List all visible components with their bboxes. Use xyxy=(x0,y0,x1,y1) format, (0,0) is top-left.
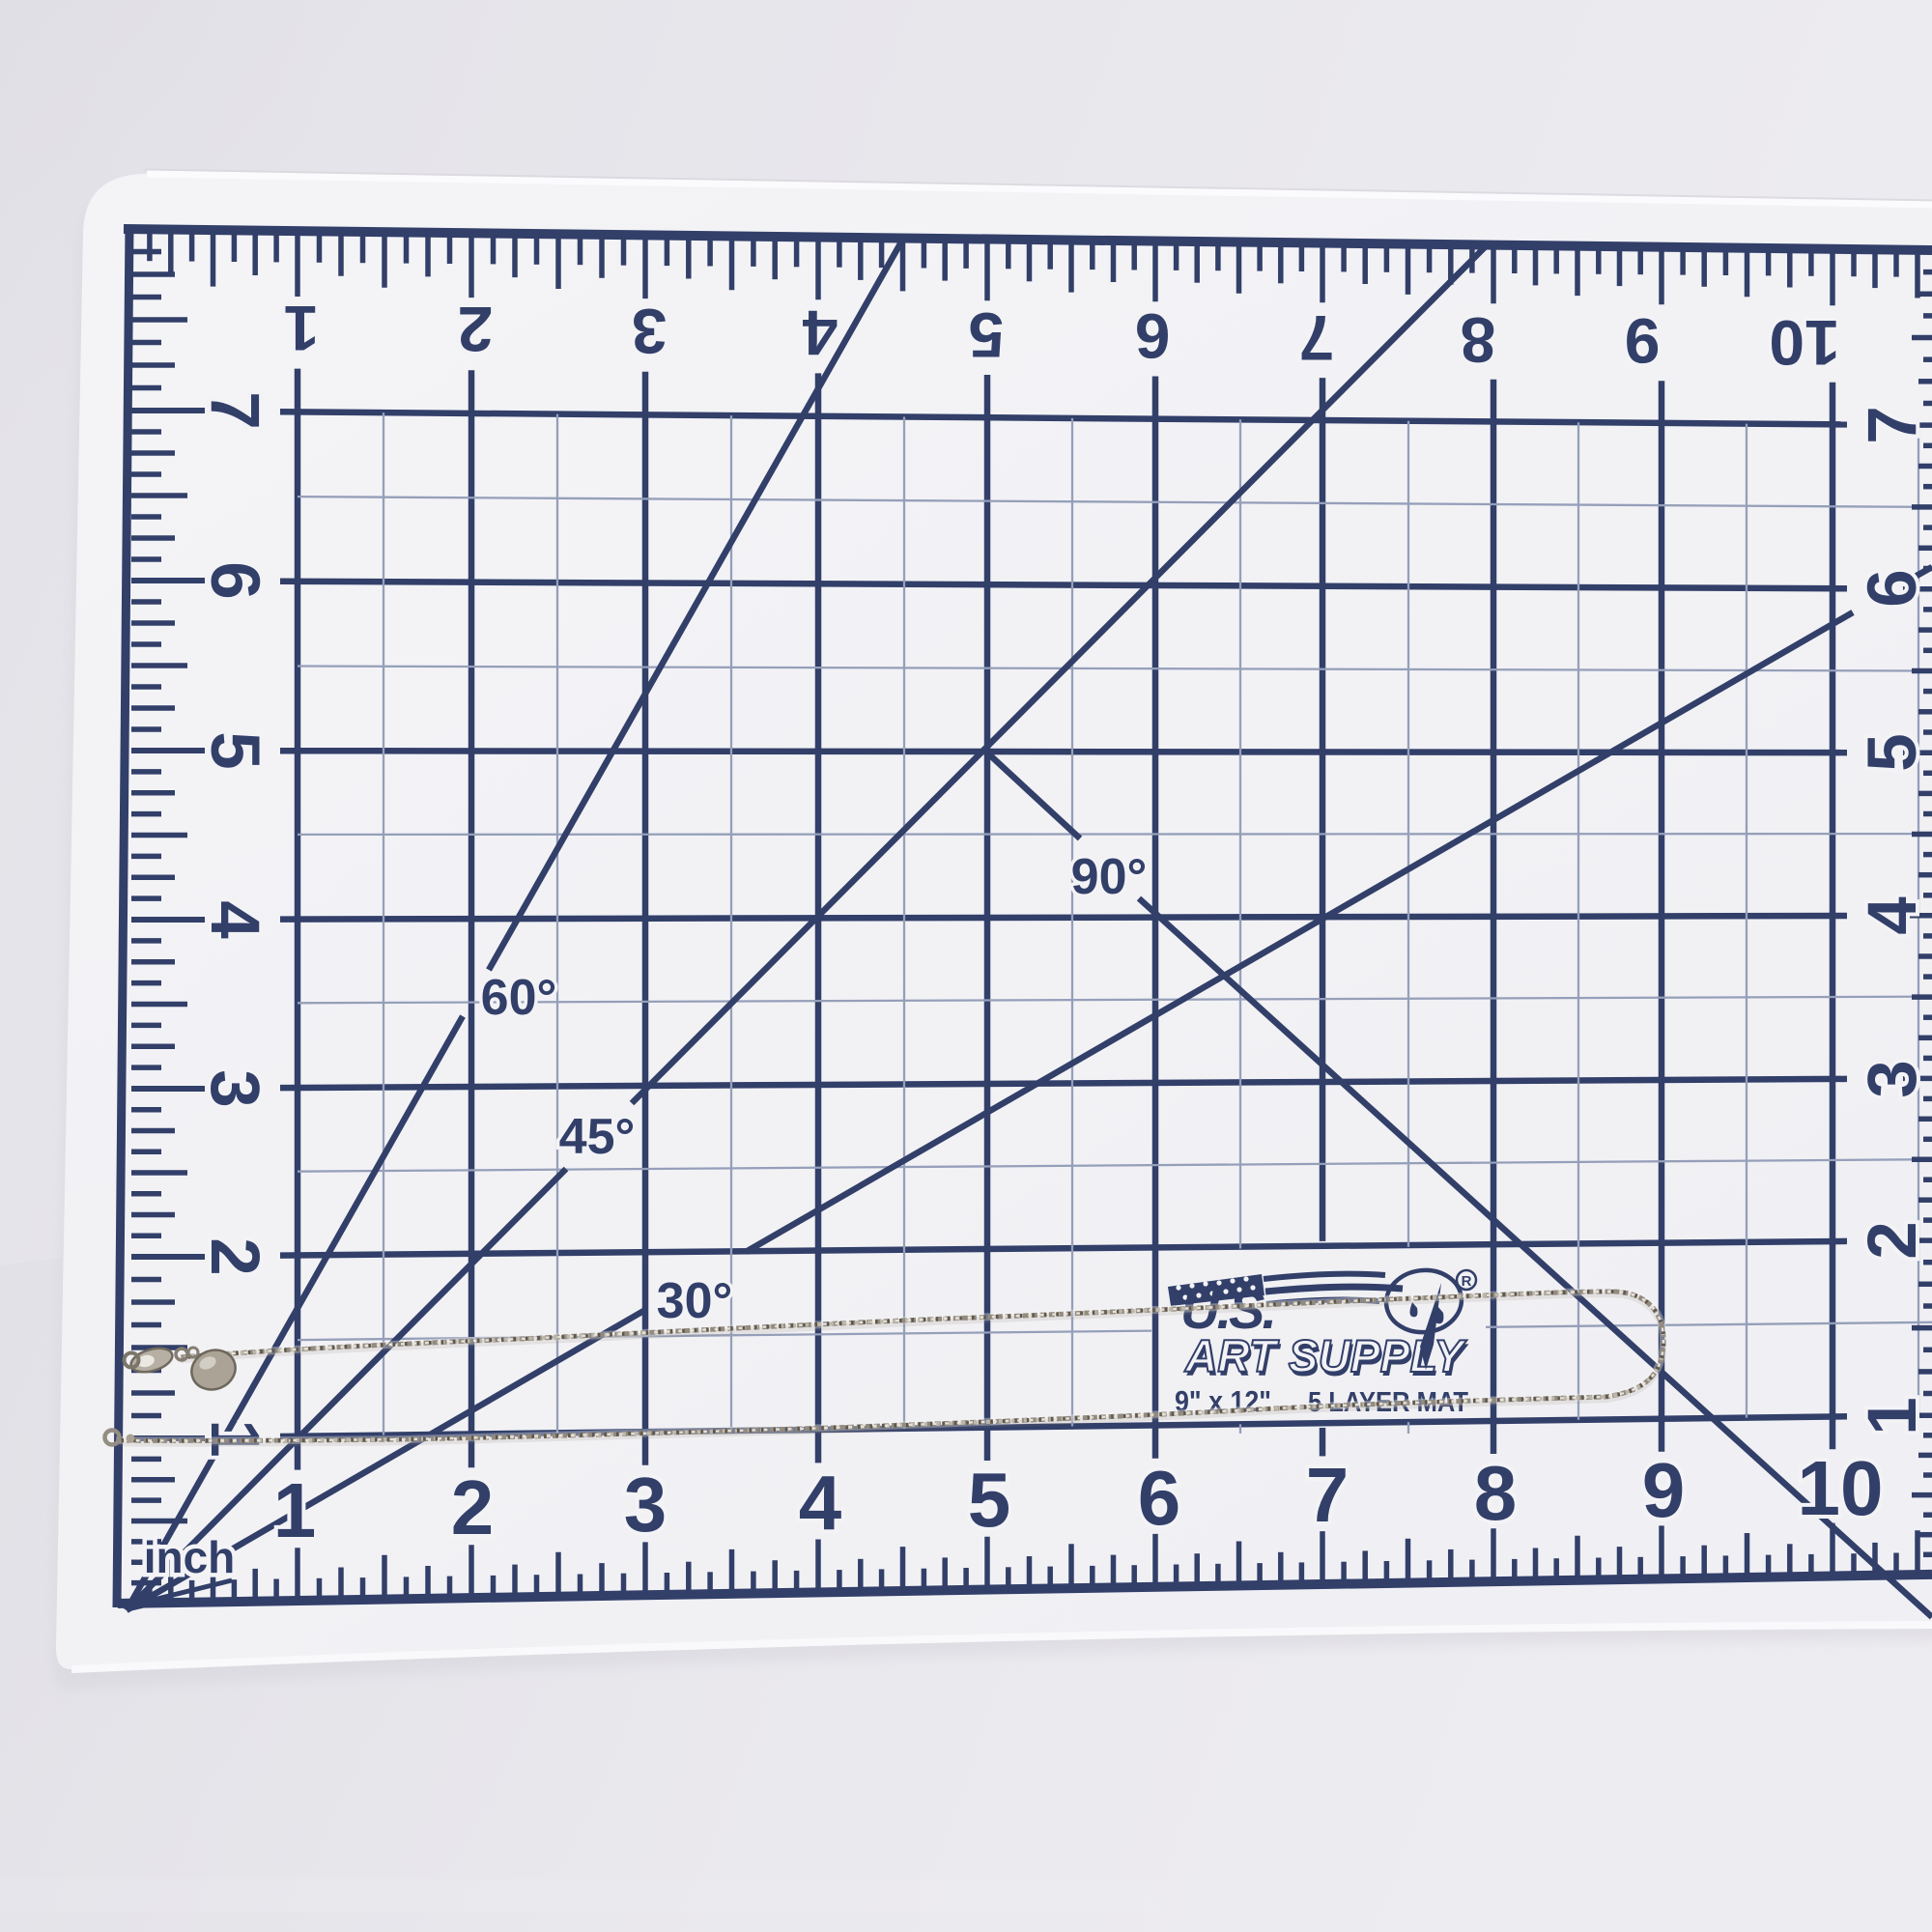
svg-text:6: 6 xyxy=(1138,1455,1181,1541)
svg-text:7: 7 xyxy=(1855,406,1931,444)
svg-text:9: 9 xyxy=(1625,305,1661,377)
svg-text:9: 9 xyxy=(1642,1447,1686,1533)
svg-text:1: 1 xyxy=(1855,1397,1931,1435)
svg-text:3: 3 xyxy=(1855,1060,1931,1098)
svg-text:1: 1 xyxy=(273,1467,317,1553)
svg-text:7: 7 xyxy=(1306,1452,1350,1538)
svg-text:inch: inch xyxy=(144,1532,236,1582)
svg-text:6: 6 xyxy=(1135,300,1171,372)
svg-text:6: 6 xyxy=(196,561,272,600)
svg-text:5: 5 xyxy=(969,299,1005,371)
svg-text:4: 4 xyxy=(1855,896,1931,935)
svg-text:6: 6 xyxy=(1855,569,1931,608)
svg-text:5: 5 xyxy=(968,1457,1011,1543)
svg-text:3: 3 xyxy=(632,296,668,367)
svg-text:4: 4 xyxy=(196,900,272,939)
svg-text:45°: 45° xyxy=(559,1109,636,1165)
svg-text:2: 2 xyxy=(458,294,494,365)
svg-text:2: 2 xyxy=(451,1464,495,1550)
svg-text:7: 7 xyxy=(1299,302,1335,374)
svg-text:8: 8 xyxy=(1474,1450,1518,1536)
svg-text:1: 1 xyxy=(284,293,320,364)
svg-text:4: 4 xyxy=(799,1460,842,1546)
svg-text:4: 4 xyxy=(802,298,838,369)
svg-text:10: 10 xyxy=(1798,1445,1884,1531)
svg-text:90°: 90° xyxy=(1071,849,1148,905)
svg-text:5: 5 xyxy=(1855,733,1931,772)
svg-text:60°: 60° xyxy=(481,970,557,1026)
svg-text:30°: 30° xyxy=(657,1273,733,1329)
svg-text:8: 8 xyxy=(1461,304,1496,376)
svg-text:10: 10 xyxy=(1769,307,1839,379)
svg-text:2: 2 xyxy=(1855,1221,1931,1260)
svg-text:5: 5 xyxy=(196,731,272,770)
svg-text:7: 7 xyxy=(196,391,272,430)
svg-text:2: 2 xyxy=(196,1237,272,1276)
svg-text:3: 3 xyxy=(624,1462,668,1548)
svg-text:3: 3 xyxy=(196,1069,272,1108)
svg-text:R: R xyxy=(1462,1273,1472,1290)
